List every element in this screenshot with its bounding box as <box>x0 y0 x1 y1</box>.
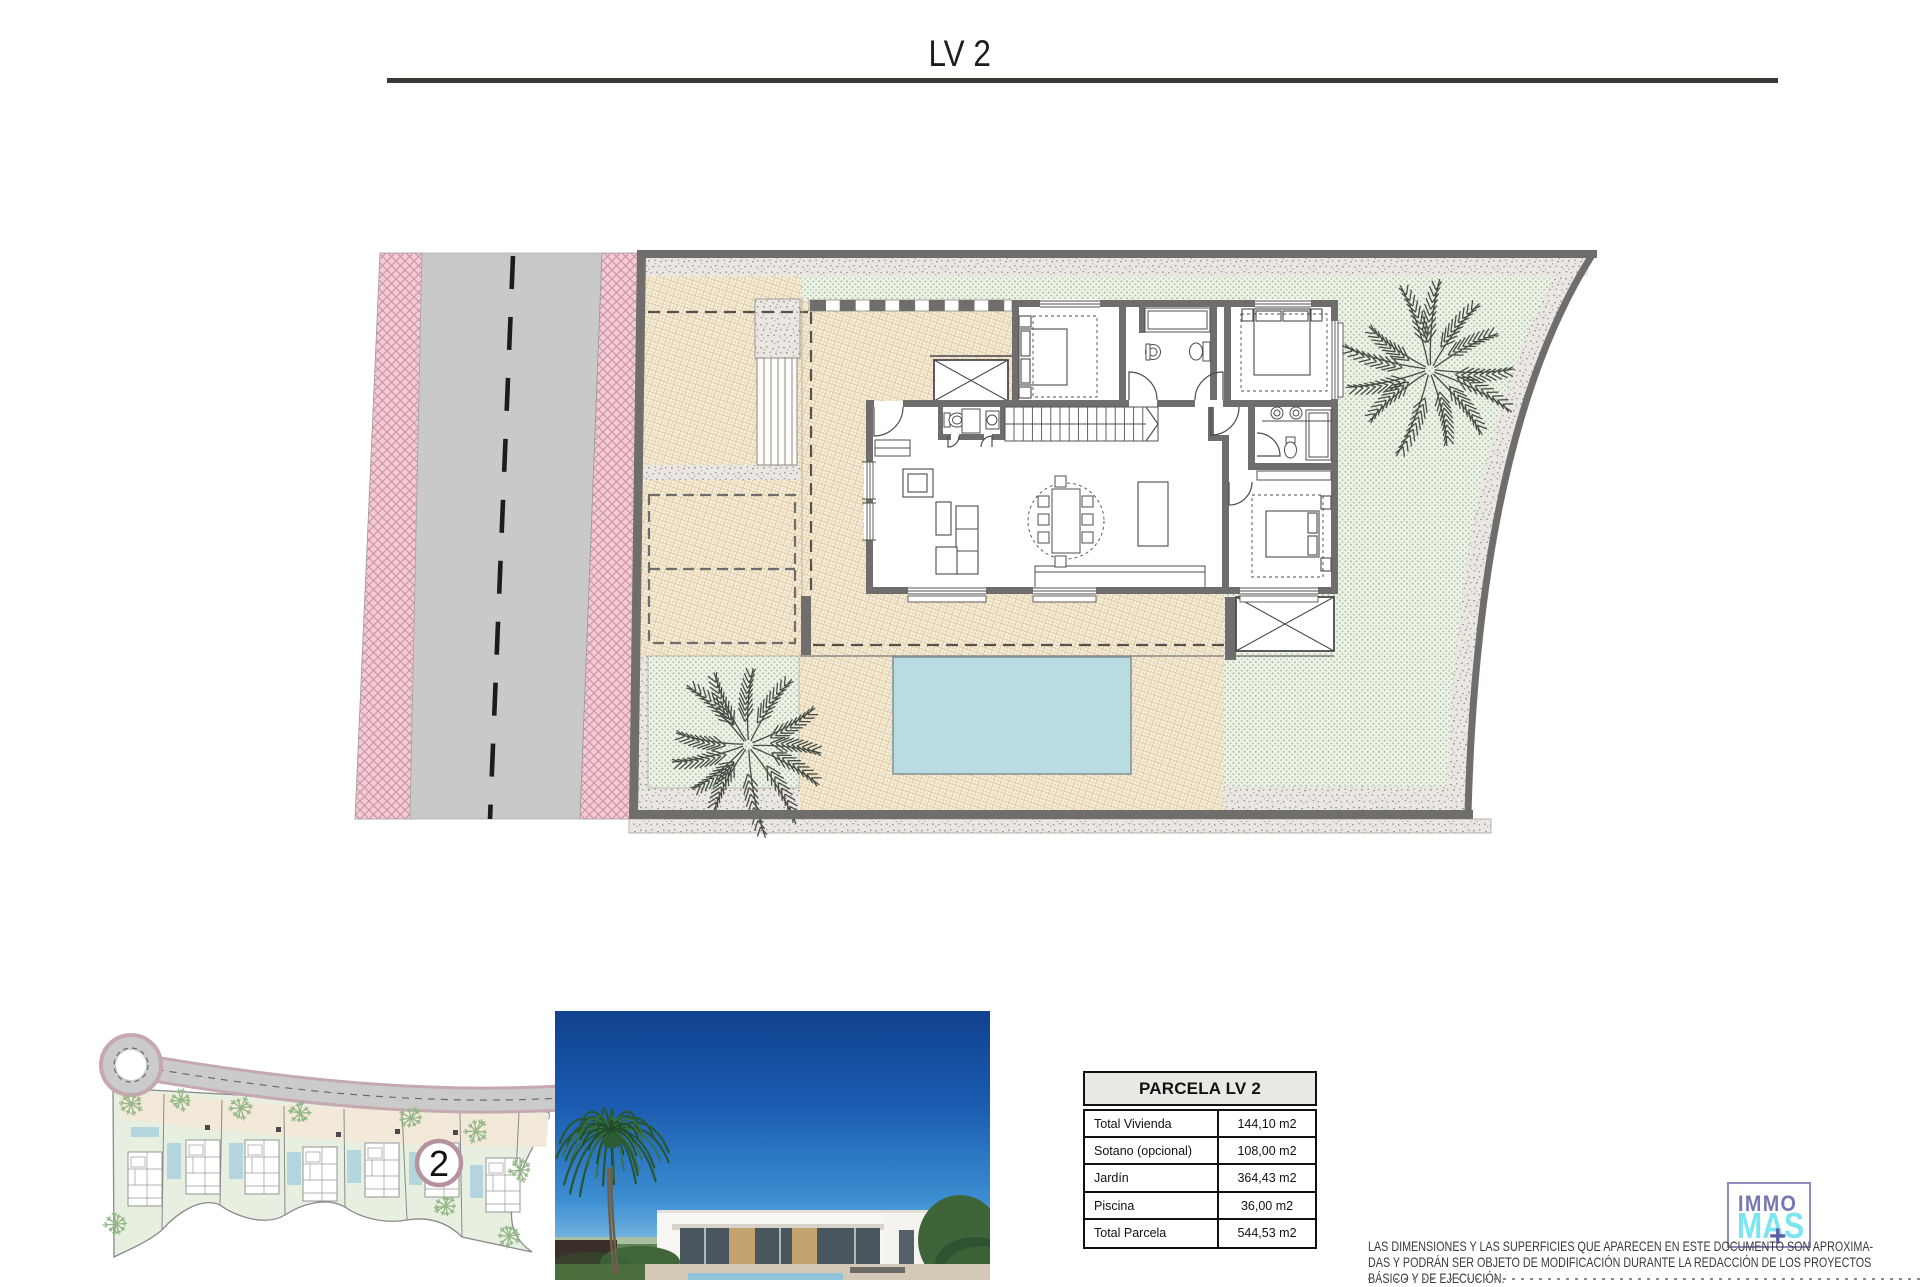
svg-text:2: 2 <box>429 1143 449 1184</box>
